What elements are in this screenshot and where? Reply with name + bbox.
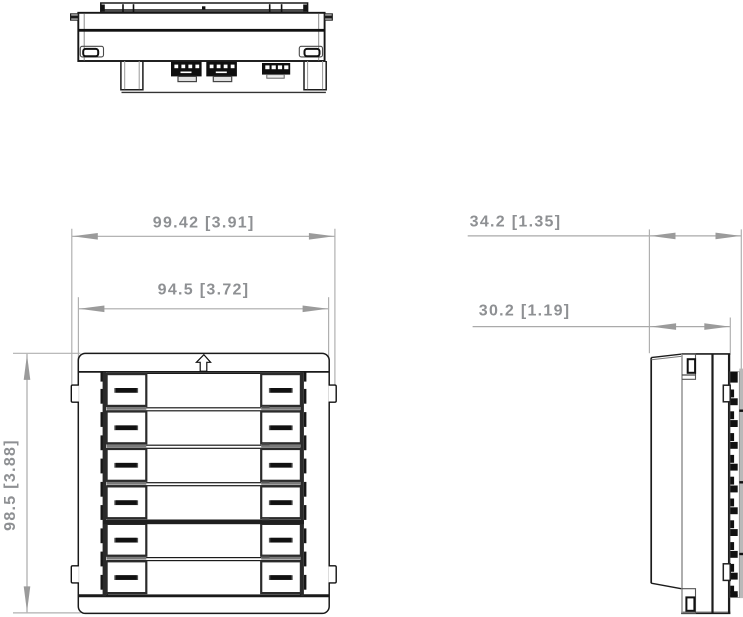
svg-text:30.2 [1.19]: 30.2 [1.19]: [479, 302, 571, 319]
svg-text:99.42 [3.91]: 99.42 [3.91]: [153, 215, 255, 232]
svg-text:34.2 [1.35]: 34.2 [1.35]: [470, 213, 562, 230]
svg-text:98.5 [3.88]: 98.5 [3.88]: [2, 439, 19, 531]
svg-text:94.5 [3.72]: 94.5 [3.72]: [158, 282, 250, 299]
